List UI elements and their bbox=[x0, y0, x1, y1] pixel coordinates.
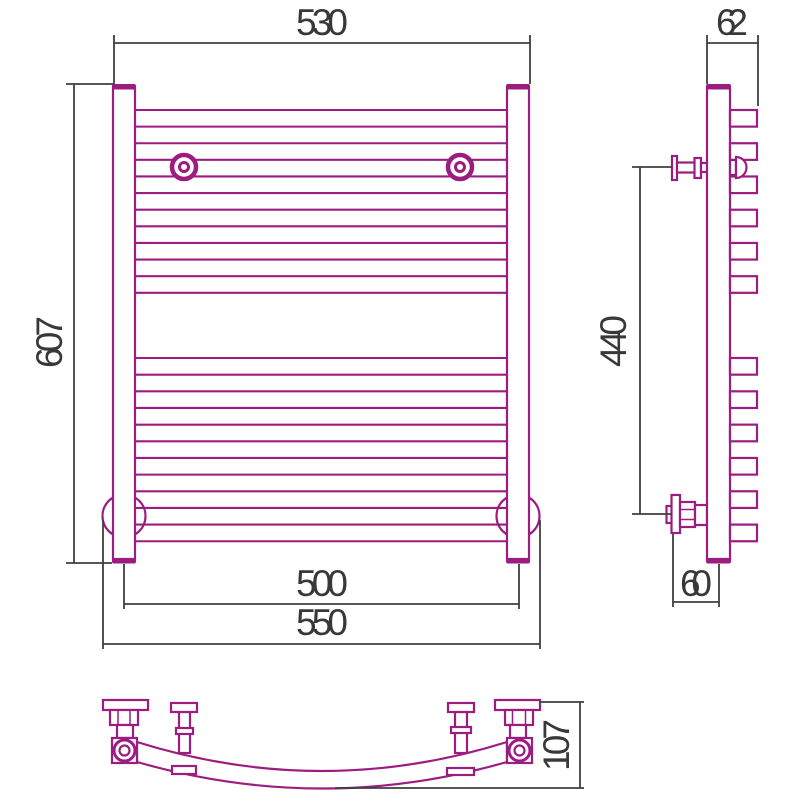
dimension-bracket-spacing-label: 440 bbox=[593, 315, 634, 367]
tube-end-tab bbox=[730, 458, 757, 475]
tube-end-tab bbox=[730, 358, 757, 375]
bottom-bracket-right-cap bbox=[448, 703, 474, 712]
bottom-bracket-right-foot bbox=[447, 768, 474, 775]
valve-port-outer bbox=[114, 740, 135, 761]
dimension-post-spacing-label: 500 bbox=[296, 563, 348, 604]
post-cap-bottom-right bbox=[506, 558, 530, 564]
tube-end-tab bbox=[730, 110, 757, 127]
technical-drawing-canvas: 530 607 500 550 62 440 60 bbox=[0, 0, 800, 800]
side-view bbox=[667, 84, 758, 564]
dimension-side-depth-label: 62 bbox=[716, 2, 748, 43]
valve-nut bbox=[110, 710, 138, 725]
valve-neck bbox=[510, 725, 526, 738]
dimension-top-width-label: 530 bbox=[296, 2, 348, 43]
bottom-bracket-left-foot bbox=[172, 766, 196, 774]
dimension-wall-offset-label: 60 bbox=[680, 563, 712, 604]
front-view bbox=[103, 84, 540, 564]
side-top-bracket-arm bbox=[677, 163, 695, 173]
bottom-bracket-right-collar bbox=[451, 727, 471, 733]
bottom-view bbox=[103, 700, 540, 789]
dimension-530: 530 bbox=[114, 2, 530, 84]
tube-end-tab bbox=[730, 391, 757, 408]
bottom-bracket-left-cap bbox=[171, 703, 197, 712]
dimension-overall-height-label: 607 bbox=[29, 316, 70, 368]
bottom-bracket-left-collar bbox=[176, 728, 193, 734]
tube-end-tab bbox=[730, 143, 757, 160]
dimension-607: 607 bbox=[29, 84, 114, 563]
drawing-page: 530 607 500 550 62 440 60 bbox=[0, 0, 800, 800]
front-post-right bbox=[507, 88, 529, 559]
side-bottom-bracket-sleeve bbox=[695, 505, 707, 525]
side-post bbox=[707, 88, 730, 559]
bracket-circle-top-right-inner bbox=[456, 163, 465, 172]
tube-end-tab bbox=[730, 525, 757, 542]
bracket-circle-top-left-inner bbox=[180, 163, 189, 172]
post-cap-top-left bbox=[112, 84, 136, 90]
tube-end-tab bbox=[730, 491, 757, 508]
tube-end-tab bbox=[730, 243, 757, 260]
side-post-cap-top bbox=[706, 84, 731, 90]
front-post-left bbox=[113, 88, 135, 559]
tube-end-tab bbox=[730, 176, 757, 193]
side-bottom-bracket-nut bbox=[680, 502, 695, 527]
side-bottom-bracket-wall-plate bbox=[672, 495, 681, 533]
tube-end-tab bbox=[730, 425, 757, 442]
valve-flange bbox=[495, 700, 540, 710]
valve-port-outer bbox=[509, 740, 530, 761]
tube-end-tab bbox=[730, 276, 757, 293]
dimension-440: 440 bbox=[593, 167, 672, 514]
dimension-curve-depth-label: 107 bbox=[536, 719, 577, 771]
valve-nut bbox=[505, 710, 533, 725]
valve-flange bbox=[103, 700, 148, 710]
side-top-bracket-knob-dome bbox=[736, 157, 747, 178]
tube-end-tab bbox=[730, 210, 757, 227]
dimension-overall-width-label: 550 bbox=[296, 602, 348, 643]
valve-neck bbox=[117, 725, 133, 738]
post-cap-top-right bbox=[506, 84, 530, 90]
post-cap-bottom-left bbox=[112, 558, 136, 564]
